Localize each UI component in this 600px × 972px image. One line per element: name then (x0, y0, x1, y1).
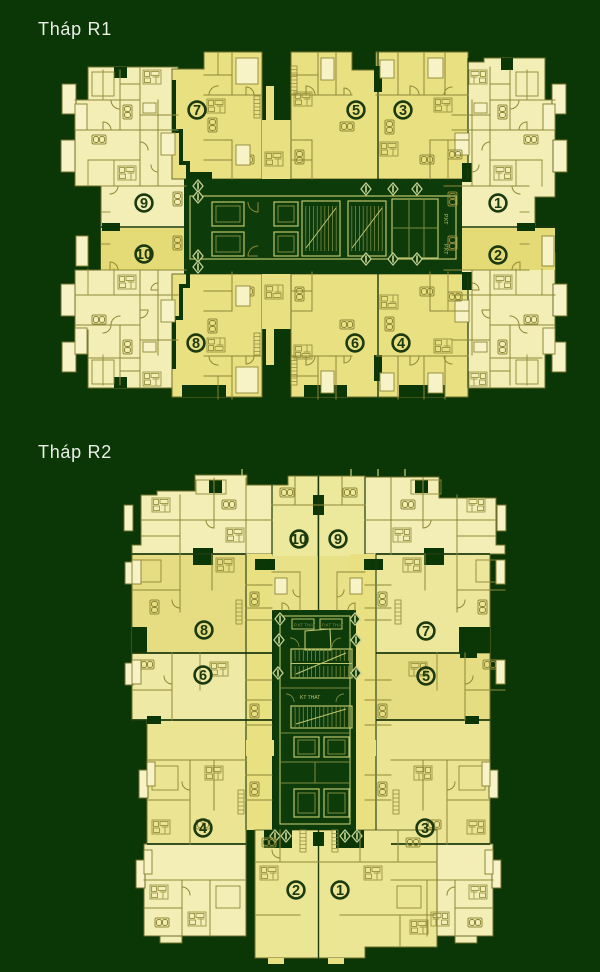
svg-text:2: 2 (292, 883, 300, 899)
svg-text:3: 3 (399, 103, 407, 119)
svg-text:2: 2 (494, 248, 502, 264)
svg-text:1: 1 (336, 883, 344, 899)
svg-text:9: 9 (334, 532, 342, 548)
svg-text:7: 7 (193, 103, 201, 119)
svg-text:1: 1 (494, 196, 502, 212)
svg-text:8: 8 (200, 623, 208, 639)
svg-text:8: 8 (192, 336, 200, 352)
svg-text:10: 10 (136, 247, 152, 263)
svg-text:Tháp R2: Tháp R2 (38, 442, 112, 462)
svg-text:KT THAT: KT THAT (300, 695, 320, 701)
svg-text:4: 4 (199, 821, 207, 837)
svg-text:7: 7 (422, 624, 430, 640)
svg-text:9: 9 (140, 196, 148, 212)
svg-text:5: 5 (352, 103, 360, 119)
svg-text:P.KT: P.KT (442, 214, 448, 224)
svg-text:4: 4 (397, 336, 405, 352)
svg-text:Tháp R1: Tháp R1 (38, 19, 112, 39)
svg-text:6: 6 (199, 668, 207, 684)
svg-text:P.KT THAT: P.KT THAT (294, 623, 316, 628)
svg-text:5: 5 (422, 669, 430, 685)
svg-text:6: 6 (351, 336, 359, 352)
svg-text:3: 3 (421, 821, 429, 837)
svg-text:P.KT: P.KT (442, 244, 448, 254)
svg-text:P.KT THAT: P.KT THAT (322, 623, 344, 628)
svg-text:10: 10 (291, 532, 307, 548)
